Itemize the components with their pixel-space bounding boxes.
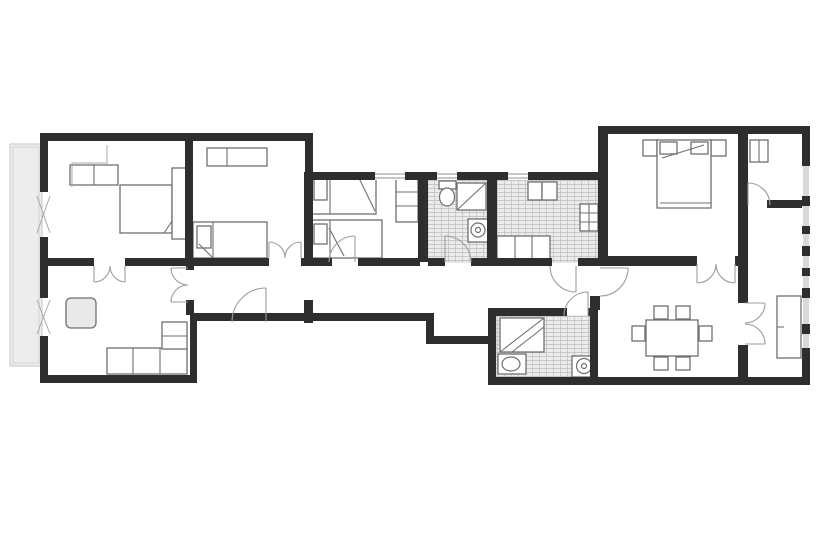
floor-plan-drawing bbox=[0, 0, 820, 560]
wall-segment bbox=[471, 258, 499, 266]
wall-segment bbox=[313, 172, 375, 180]
wall-segment bbox=[598, 126, 810, 134]
wall-segment bbox=[185, 137, 193, 258]
room-kitchen bbox=[497, 180, 598, 258]
room-study bbox=[748, 208, 802, 377]
window-bedroom-3 bbox=[375, 172, 405, 180]
wall-segment bbox=[40, 133, 313, 141]
wall-segment bbox=[738, 133, 748, 303]
wall-segment bbox=[802, 196, 810, 206]
wall-segment bbox=[40, 133, 48, 192]
room-bedroom-3 bbox=[313, 180, 418, 258]
wall-segment bbox=[358, 258, 420, 266]
wall-segment bbox=[428, 258, 445, 266]
wall-segment bbox=[47, 258, 94, 266]
room-living bbox=[48, 266, 186, 375]
room-bedroom-1 bbox=[48, 141, 185, 258]
wall-segment bbox=[802, 268, 810, 276]
wall-segment bbox=[598, 256, 697, 266]
wall-segment bbox=[528, 172, 598, 180]
wall-segment bbox=[488, 308, 496, 377]
wall-segment bbox=[305, 133, 313, 178]
floor-plan bbox=[0, 0, 820, 560]
wall-segment bbox=[488, 377, 810, 385]
room-bathroom-1 bbox=[428, 180, 487, 258]
room-dining bbox=[608, 266, 738, 377]
wall-segment bbox=[40, 375, 197, 383]
wall-segment bbox=[767, 200, 802, 208]
wall-segment bbox=[418, 172, 428, 262]
wall-segment bbox=[802, 324, 810, 334]
wall-segment bbox=[802, 288, 810, 298]
wall-segment bbox=[304, 172, 313, 266]
wall-segment bbox=[802, 356, 810, 385]
room-bedroom-2 bbox=[193, 141, 304, 258]
wall-segment bbox=[190, 313, 433, 321]
room-entry-passage bbox=[748, 138, 802, 200]
wall-segment bbox=[802, 126, 810, 166]
window-kitchen bbox=[508, 172, 528, 180]
wall-segment bbox=[590, 308, 598, 377]
wall-segment bbox=[190, 313, 197, 383]
wall-segment bbox=[738, 345, 748, 377]
window-bathroom-1 bbox=[437, 172, 457, 180]
wall-segment bbox=[125, 258, 269, 266]
wall-segment bbox=[802, 348, 810, 356]
wall-segment bbox=[802, 246, 810, 256]
wall-segment bbox=[457, 172, 508, 180]
wall-segment bbox=[598, 126, 608, 266]
wall-segment bbox=[426, 336, 493, 344]
wall-segment bbox=[40, 237, 48, 298]
room-bedroom-4 bbox=[608, 138, 738, 256]
wall-segment bbox=[802, 226, 810, 234]
room-bathroom-2 bbox=[496, 316, 590, 377]
room-hallway bbox=[197, 266, 598, 313]
wall-segment bbox=[487, 172, 497, 262]
wall-segment bbox=[497, 258, 552, 266]
